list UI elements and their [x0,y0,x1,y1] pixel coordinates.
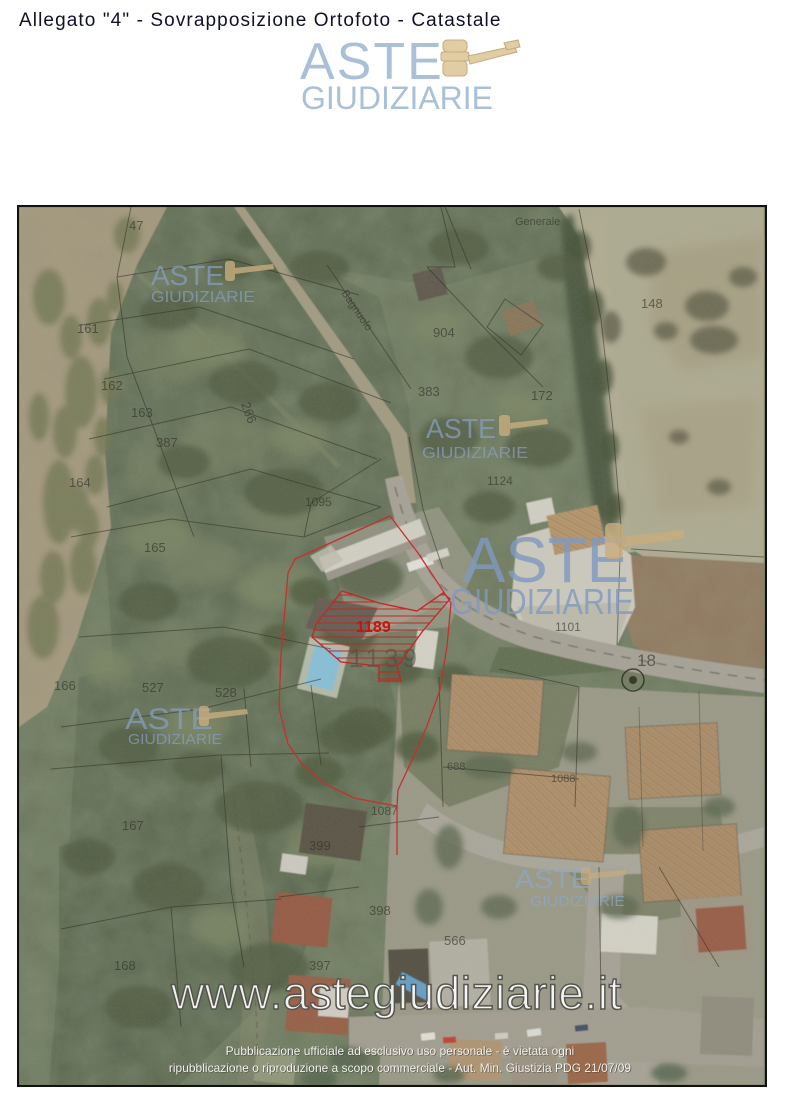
svg-text:148: 148 [641,296,663,311]
svg-text:1088: 1088 [551,773,575,785]
svg-text:1124: 1124 [487,474,513,488]
svg-text:ASTE: ASTE [426,413,496,444]
svg-text:1101: 1101 [555,620,581,634]
svg-text:GIUDIZIARIE: GIUDIZIARIE [128,731,222,748]
svg-text:399: 399 [309,838,331,853]
svg-text:166: 166 [54,678,76,693]
svg-text:164: 164 [69,475,91,490]
svg-text:ASTE: ASTE [515,864,590,894]
svg-text:1189: 1189 [356,619,391,636]
svg-text:398: 398 [369,903,391,918]
svg-text:162: 162 [101,378,123,393]
svg-text:383: 383 [418,384,440,399]
svg-text:47: 47 [129,218,143,233]
svg-text:165: 165 [144,540,166,555]
svg-text:161: 161 [77,321,99,336]
svg-text:Generale: Generale [515,216,560,228]
svg-text:172: 172 [531,388,553,403]
svg-text:566: 566 [444,933,466,948]
svg-text:GIUDIZIARIE: GIUDIZIARIE [422,445,528,462]
svg-text:GIUDIZIARIE: GIUDIZIARIE [450,581,634,622]
svg-text:163: 163 [131,405,153,420]
svg-text:387: 387 [156,435,178,450]
svg-text:167: 167 [122,818,144,833]
svg-text:688: 688 [447,761,465,773]
svg-text:18: 18 [637,651,656,670]
svg-text:527: 527 [142,680,164,695]
svg-text:ASTE: ASTE [151,260,224,291]
svg-text:Pubblicazione ufficiale ad esc: Pubblicazione ufficiale ad esclusivo uso… [226,1044,575,1058]
svg-text:ripubblicazione o riproduzione: ripubblicazione o riproduzione a scopo c… [169,1061,632,1075]
svg-text:GIUDIZIARIE: GIUDIZIARIE [530,893,625,910]
svg-text:168: 168 [114,958,136,973]
svg-text:1095: 1095 [305,495,332,509]
svg-text:GIUDIZIARIE: GIUDIZIARIE [151,289,255,306]
svg-text:528: 528 [215,685,237,700]
svg-text:904: 904 [433,325,455,340]
svg-text:www.astegiudiziarie.it: www.astegiudiziarie.it [170,967,622,1019]
